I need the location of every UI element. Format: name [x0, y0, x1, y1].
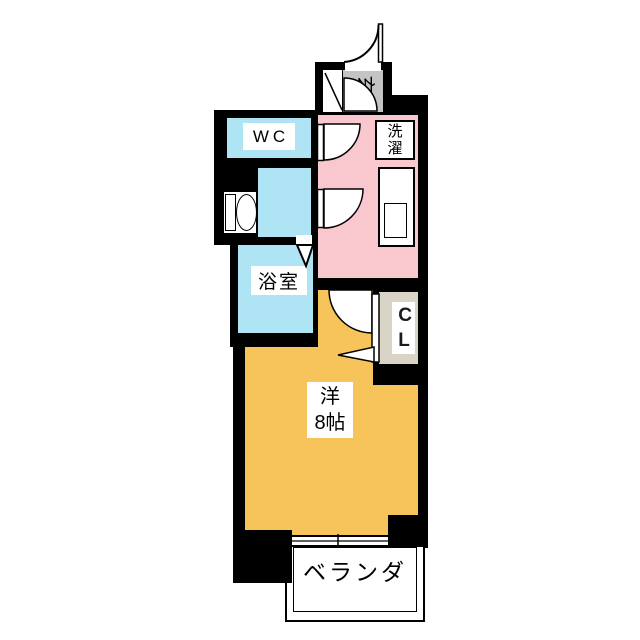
- laundry-label: 洗濯: [388, 123, 403, 157]
- room-main-right: [373, 385, 418, 518]
- room-main-upper: [318, 290, 373, 347]
- toilet-tank: [225, 194, 236, 231]
- entrance-label: 玄: [356, 74, 378, 96]
- bathroom-door-opening: [296, 235, 312, 245]
- entrance-door-arc: [344, 25, 379, 62]
- closet-label-box: CL: [392, 302, 415, 354]
- veranda-label: ベランダ: [293, 552, 417, 588]
- wc-label: WC: [243, 123, 295, 150]
- bathroom-label: 浴室: [251, 266, 307, 295]
- floorplan: 玄 WC 浴室 洗濯 CL 洋 8帖 ベランダ: [0, 0, 640, 640]
- closet-label: CL: [398, 303, 409, 353]
- wall-bottom-left: [233, 530, 292, 583]
- entrance-door-leaf: [379, 24, 383, 62]
- main-room-label-line1: 洋: [320, 384, 340, 410]
- toilet-bowl: [236, 194, 257, 231]
- main-room-label-line2: 8帖: [314, 410, 345, 436]
- room-toilet: [258, 168, 311, 237]
- wall-bottom-right: [388, 515, 428, 545]
- kitchen-sink: [384, 203, 407, 238]
- main-room-label: 洋 8帖: [307, 382, 353, 438]
- entrance-shoe-area: [323, 70, 343, 112]
- laundry-box: 洗濯: [375, 120, 415, 160]
- entrance-door-opening: [345, 62, 381, 71]
